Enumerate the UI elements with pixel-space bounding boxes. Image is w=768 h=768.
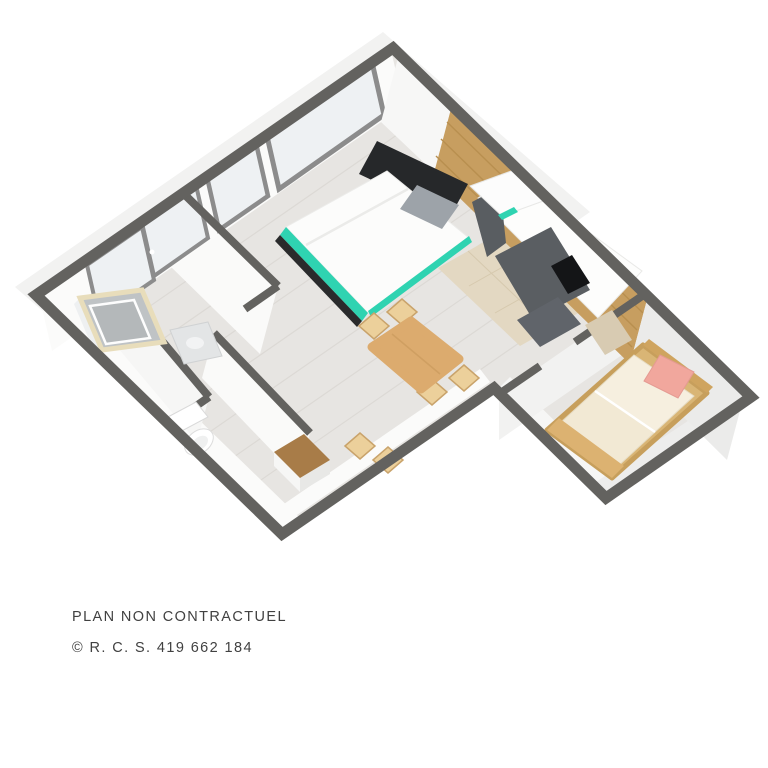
disclaimer-text: PLAN NON CONTRACTUEL [72, 609, 287, 625]
floor-plan-page: PLAN NON CONTRACTUEL © R. C. S. 419 662 … [0, 0, 768, 768]
registration-text: © R. C. S. 419 662 184 [72, 640, 253, 656]
washbasin [186, 337, 204, 349]
door-handle [150, 250, 155, 255]
